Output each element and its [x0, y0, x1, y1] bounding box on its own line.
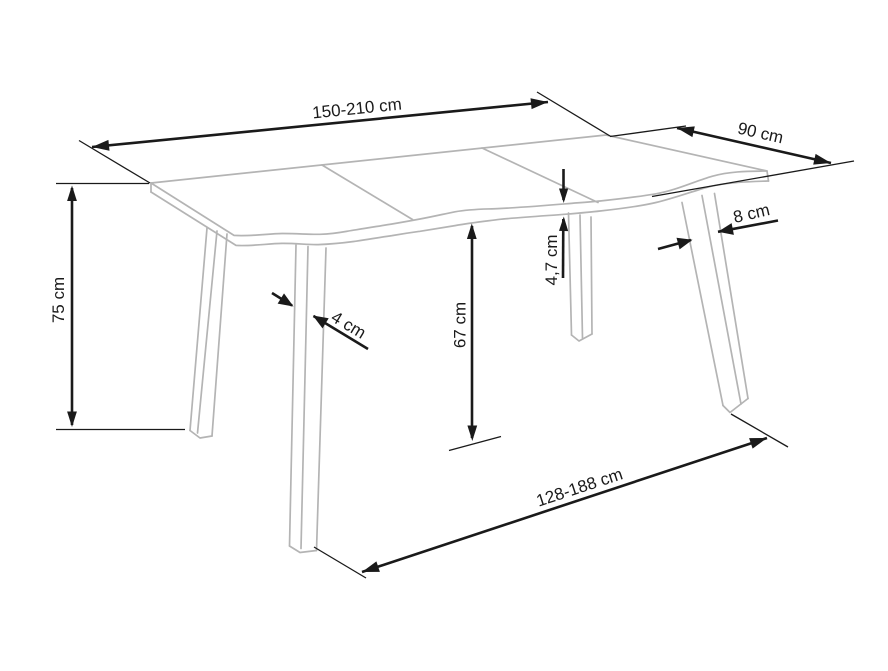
svg-text:4,7 cm: 4,7 cm: [542, 234, 561, 285]
svg-text:75 cm: 75 cm: [49, 277, 68, 323]
svg-text:67 cm: 67 cm: [451, 302, 470, 348]
